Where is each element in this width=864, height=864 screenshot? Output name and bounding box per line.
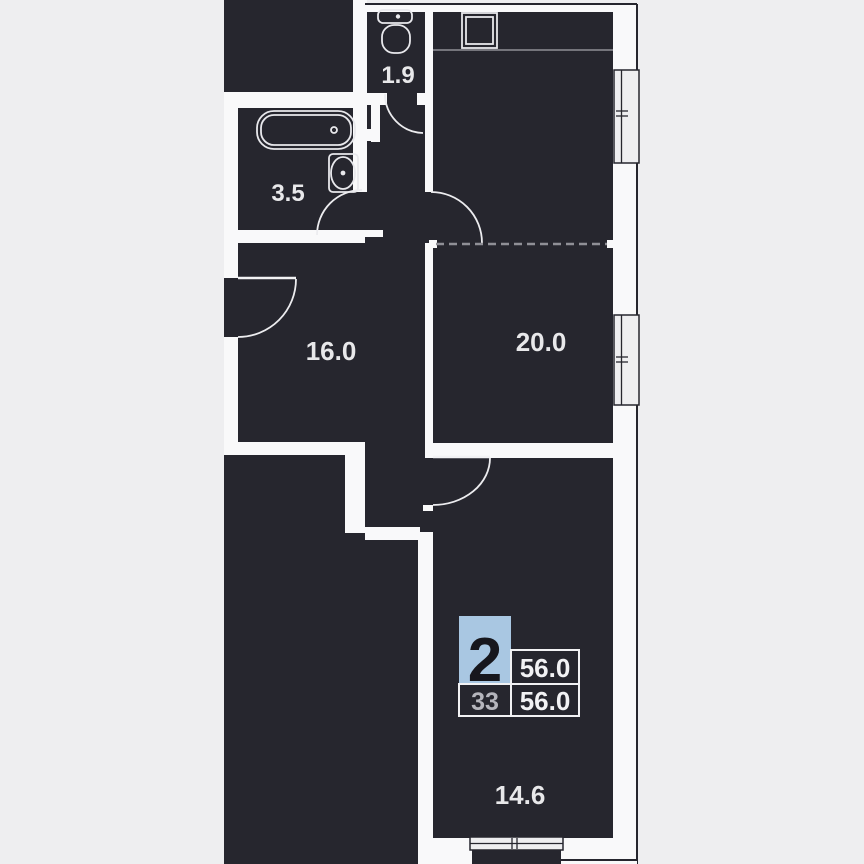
badge-floor: 33 bbox=[471, 688, 499, 716]
room-label-wc: 1.9 bbox=[381, 62, 414, 89]
room-label-living: 20.0 bbox=[516, 327, 567, 357]
room-label-bedroom: 14.6 bbox=[495, 780, 546, 810]
wall-bathroom-bottom-stub bbox=[365, 230, 383, 237]
room-label-bathroom: 3.5 bbox=[271, 180, 304, 207]
wall-bathroom-top bbox=[224, 92, 365, 108]
floorplan-page: 1.9 3.5 16.0 20.0 14.6 2 56.0 33 56.0 bbox=[0, 0, 864, 864]
badge-total-area: 56.0 bbox=[520, 653, 571, 683]
wall-corridor-living bbox=[425, 243, 433, 444]
wall-left bbox=[224, 93, 238, 442]
wall-wc-bottom-right bbox=[417, 93, 425, 105]
badge-area: 56.0 bbox=[520, 686, 571, 716]
wall-niche-stub bbox=[355, 129, 380, 141]
balcony-block bbox=[472, 850, 561, 864]
wall-bedroom-left bbox=[418, 532, 433, 864]
window-living bbox=[614, 315, 639, 405]
floorplan-drawing: 1.9 3.5 16.0 20.0 14.6 2 56.0 33 56.0 bbox=[0, 0, 864, 864]
wall-room16-bottom bbox=[224, 442, 365, 455]
wall-corridor-kitchen-top bbox=[425, 4, 433, 192]
wall-door-stub bbox=[423, 505, 433, 511]
entrance-door-opening bbox=[224, 278, 238, 337]
room-label-room16: 16.0 bbox=[306, 336, 357, 366]
window-kitchen bbox=[614, 70, 639, 163]
dash-cap-left bbox=[429, 240, 437, 248]
wall-bathroom-bottom bbox=[224, 230, 365, 243]
wall-hall-bottom bbox=[365, 527, 420, 540]
window-bedroom bbox=[470, 837, 563, 850]
wall-step-vertical bbox=[345, 455, 365, 533]
dash-cap-right bbox=[607, 240, 615, 248]
